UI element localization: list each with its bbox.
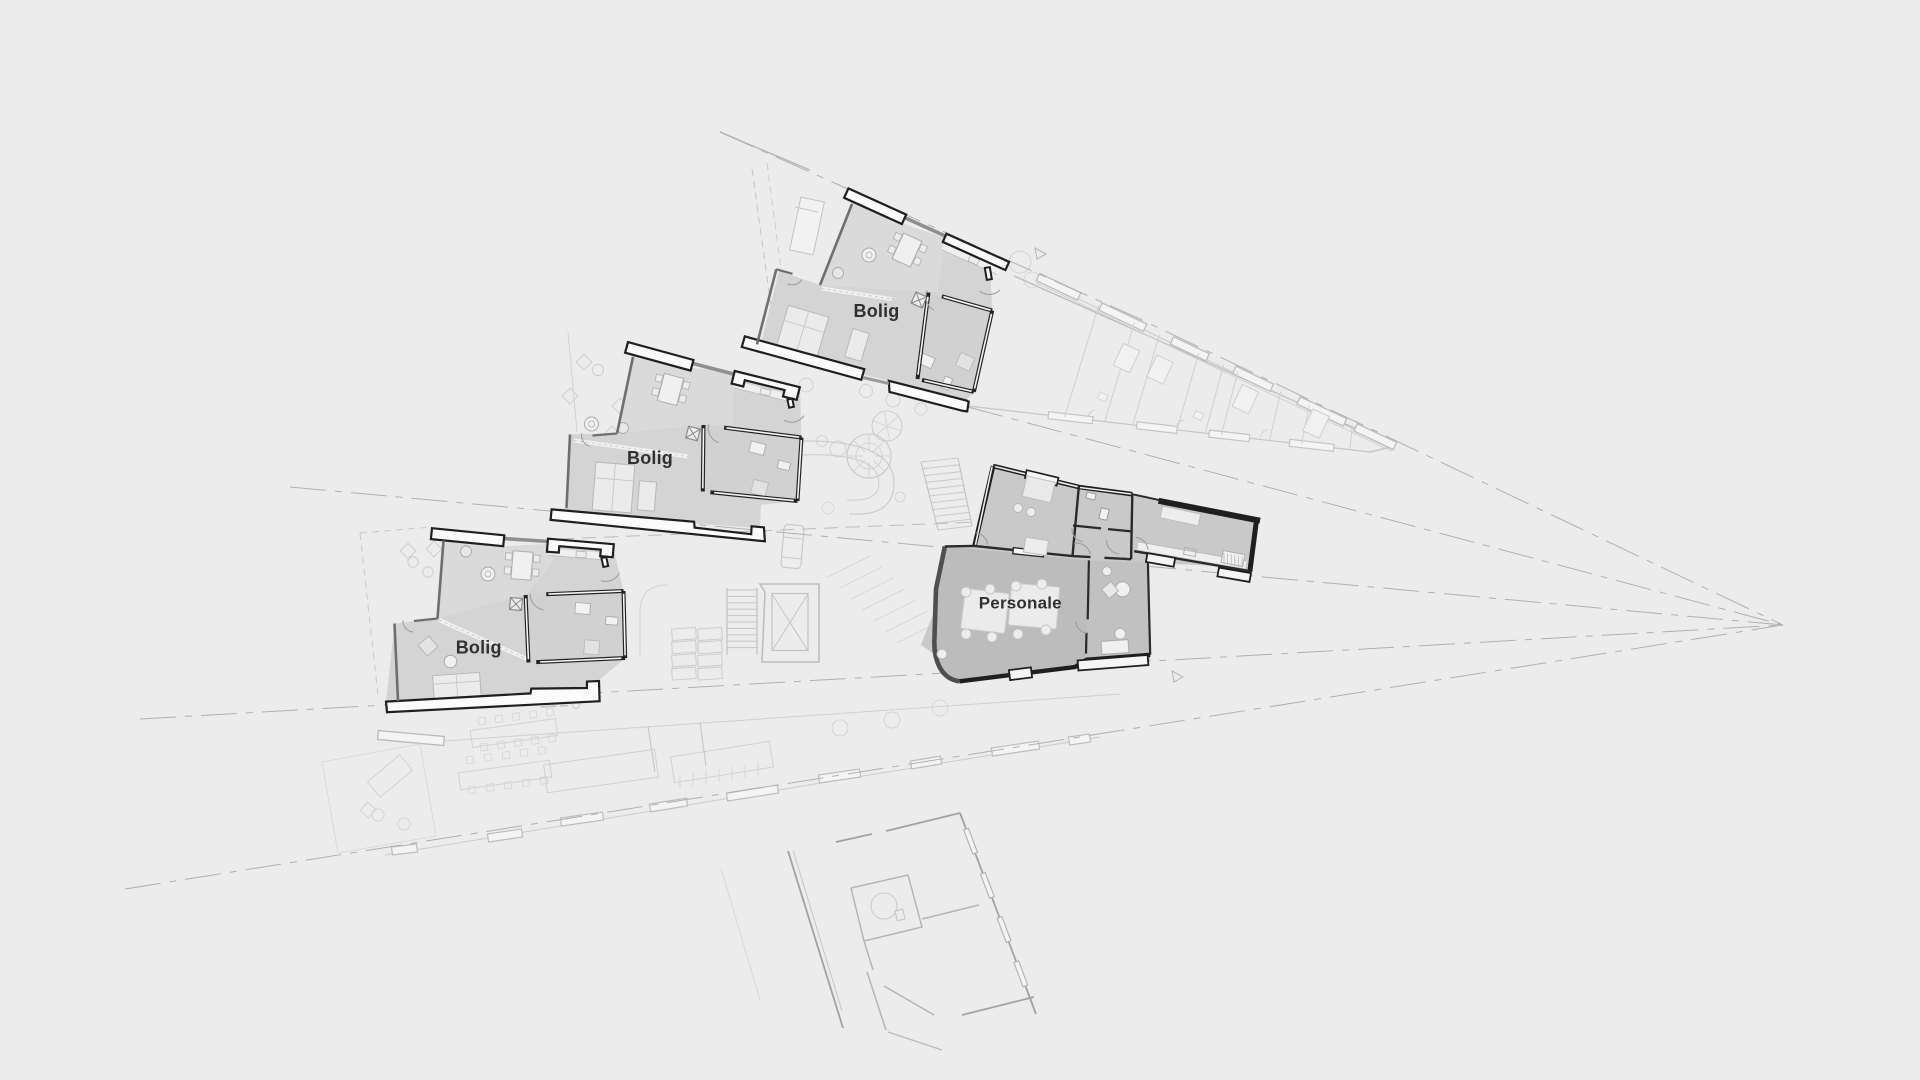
svg-text:Bolig: Bolig: [456, 637, 502, 657]
svg-text:Bolig: Bolig: [854, 301, 900, 321]
svg-text:Bolig: Bolig: [627, 448, 673, 468]
svg-text:Personale: Personale: [979, 594, 1062, 613]
